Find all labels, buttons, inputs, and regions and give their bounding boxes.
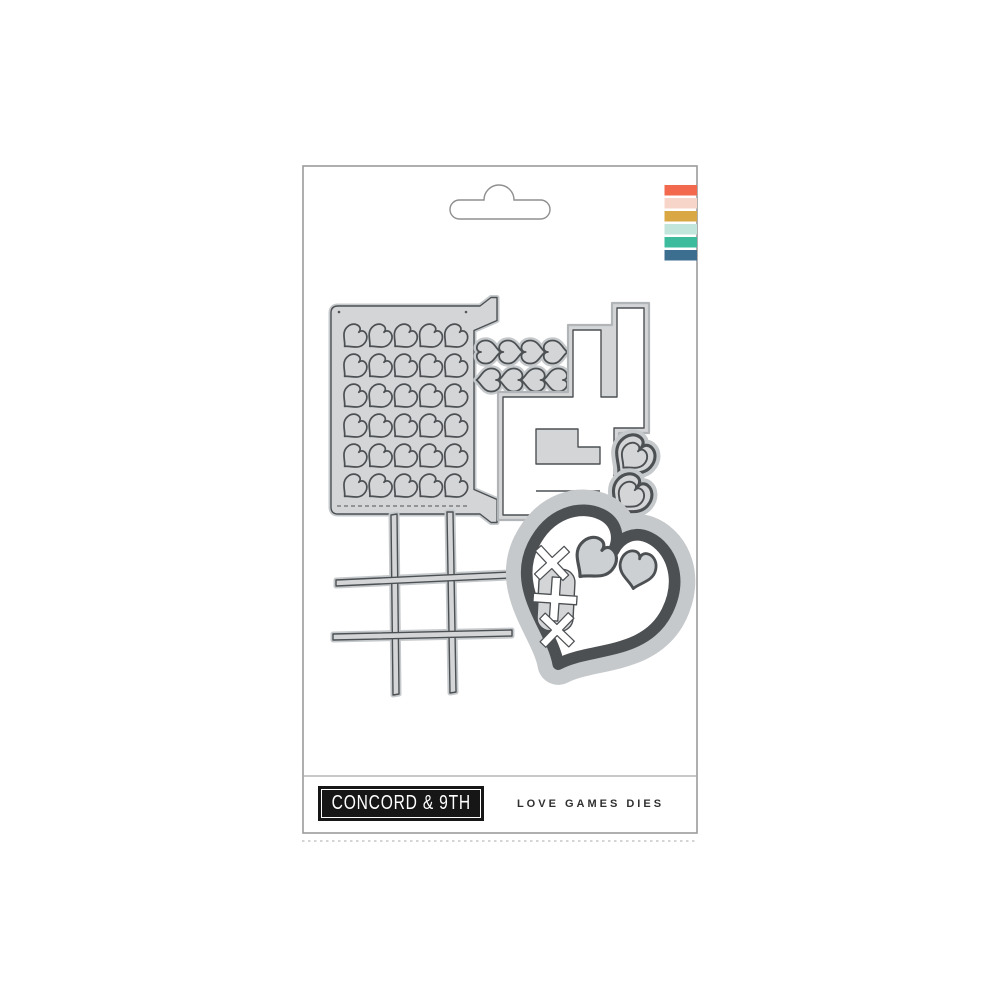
heart-grid-cover-plate-die (331, 298, 497, 523)
color-swatch (665, 211, 698, 222)
registration-dot (465, 311, 468, 314)
brand-logo-box: CONCORD & 9TH (318, 786, 484, 821)
color-swatch (665, 250, 698, 261)
color-swatch (665, 237, 698, 248)
registration-dot (338, 311, 341, 314)
brand-logo-text: CONCORD & 9TH (331, 792, 470, 815)
product-photo: CONCORD & 9TH LOVE GAMES DIES (0, 0, 1000, 1000)
color-swatch (665, 224, 698, 235)
brand-logo-frame: CONCORD & 9TH (321, 789, 481, 818)
product-title: LOVE GAMES DIES (484, 786, 697, 821)
package-graphic (0, 0, 1000, 1000)
color-swatch (665, 185, 698, 196)
color-swatch (665, 198, 698, 209)
